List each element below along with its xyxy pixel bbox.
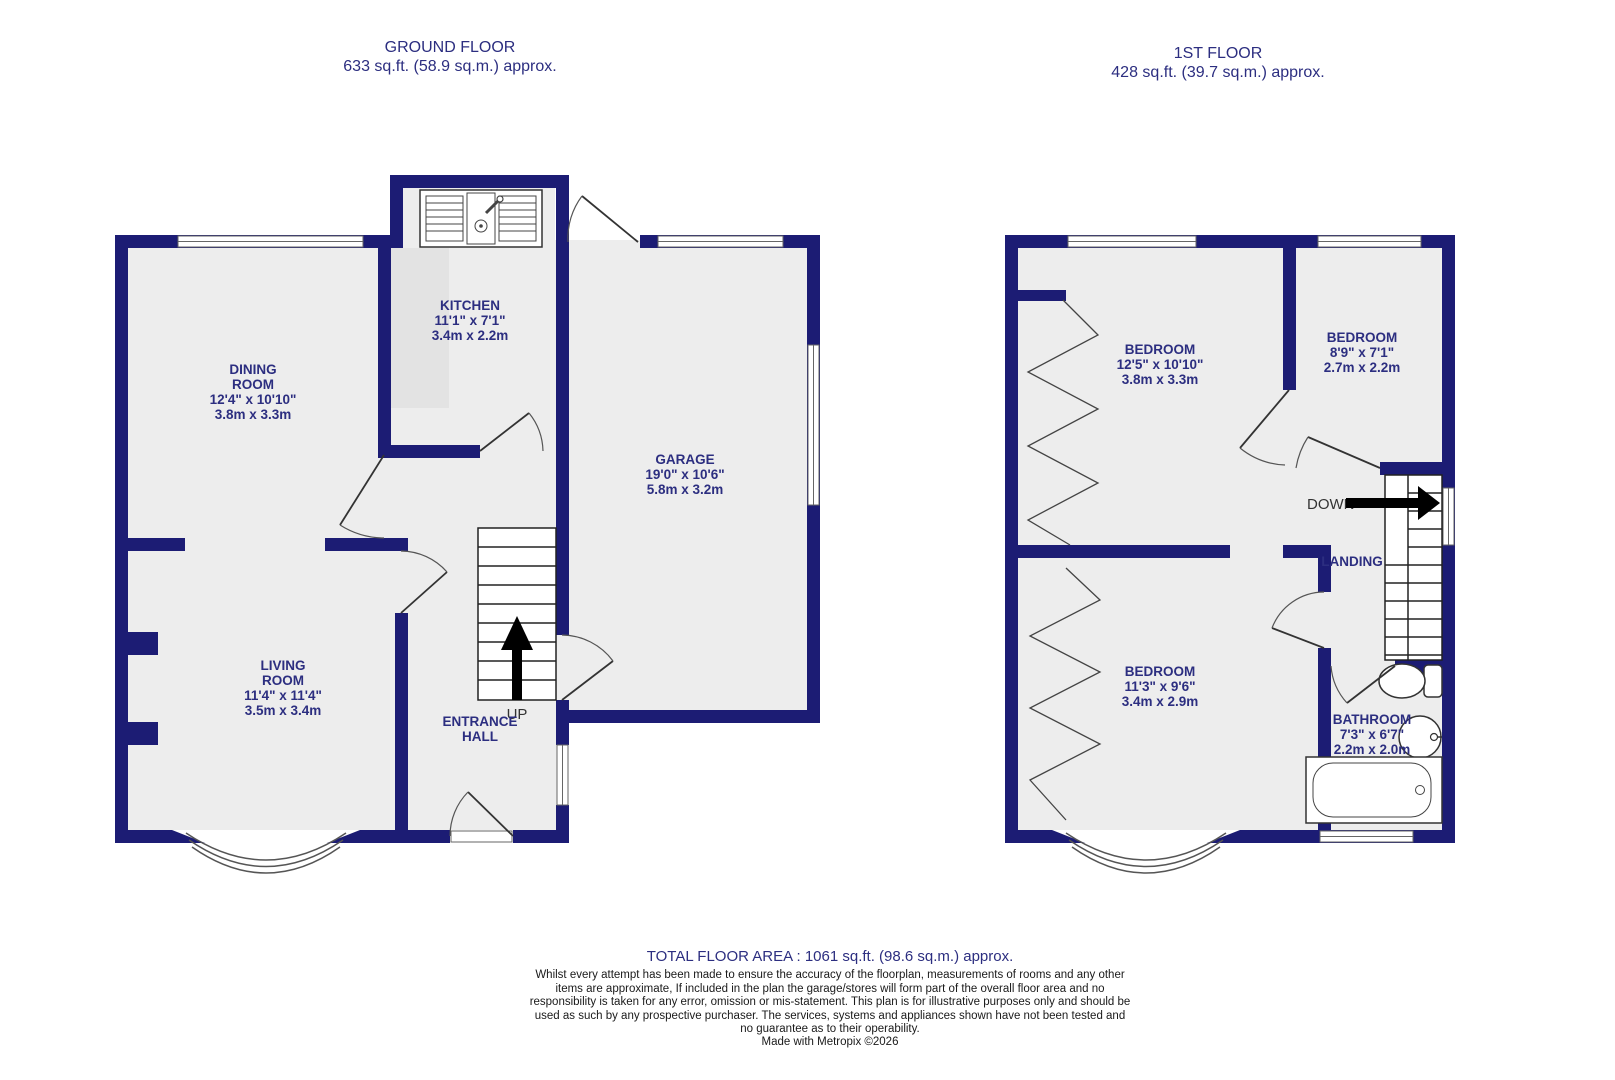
- room-name: KITCHEN: [360, 298, 580, 313]
- room-name: BEDROOM: [1252, 330, 1472, 345]
- ground-floor-title: GROUND FLOOR 633 sq.ft. (58.9 sq.m.) app…: [230, 38, 670, 76]
- hall-side-window: [557, 745, 568, 805]
- room-name: GARAGE: [575, 452, 795, 467]
- room-label-bedroom1: BEDROOM 12'5" x 10'10" 3.8m x 3.3m: [1050, 342, 1270, 387]
- room-label-landing: LANDING: [1282, 554, 1422, 569]
- room-label-bathroom: BATHROOM 7'3" x 6'7" 2.2m x 2.0m: [1262, 712, 1482, 757]
- garage-top-window: [658, 236, 783, 247]
- room-name: BEDROOM: [1050, 342, 1270, 357]
- room-dims-metric: 3.4m x 2.2m: [360, 328, 580, 343]
- room-label-bedroom2: BEDROOM 8'9" x 7'1" 2.7m x 2.2m: [1252, 330, 1472, 375]
- room-dims-metric: 5.8m x 3.2m: [575, 482, 795, 497]
- bathtub-icon: [1306, 757, 1442, 823]
- ground-floor-name: GROUND FLOOR: [230, 38, 670, 57]
- first-floor-area: 428 sq.ft. (39.7 sq.m.) approx.: [998, 63, 1438, 82]
- room-label-living: LIVING ROOM 11'4" x 11'4" 3.5m x 3.4m: [173, 658, 393, 718]
- bedroom1-window: [1068, 236, 1196, 247]
- first-floor-title: 1ST FLOOR 428 sq.ft. (39.7 sq.m.) approx…: [998, 44, 1438, 82]
- room-dims-imperial: 11'3" x 9'6": [1050, 679, 1270, 694]
- room-name: LIVING ROOM: [173, 658, 393, 688]
- ground-floor-plan: UP: [115, 175, 820, 873]
- room-name: DINING ROOM: [143, 362, 363, 392]
- room-dims-metric: 3.8m x 3.3m: [143, 407, 363, 422]
- floorplan-page: UP: [0, 0, 1615, 1080]
- room-name: LANDING: [1282, 554, 1422, 569]
- toilet-icon: [1379, 664, 1442, 698]
- room-dims-metric: 2.7m x 2.2m: [1252, 360, 1472, 375]
- room-dims-imperial: 11'1" x 7'1": [360, 313, 580, 328]
- total-floor-area: TOTAL FLOOR AREA : 1061 sq.ft. (98.6 sq.…: [455, 948, 1205, 965]
- room-dims-imperial: 19'0" x 10'6": [575, 467, 795, 482]
- room-dims-metric: 3.5m x 3.4m: [173, 703, 393, 718]
- first-floor-name: 1ST FLOOR: [998, 44, 1438, 63]
- room-dims-imperial: 8'9" x 7'1": [1252, 345, 1472, 360]
- room-label-dining: DINING ROOM 12'4" x 10'10" 3.8m x 3.3m: [143, 362, 363, 422]
- room-dims-imperial: 7'3" x 6'7": [1262, 727, 1482, 742]
- landing-window: [1443, 488, 1454, 545]
- credit-text: Made with Metropix ©2026: [528, 1036, 1132, 1048]
- room-dims-imperial: 12'4" x 10'10": [143, 392, 363, 407]
- bathroom-window: [1320, 831, 1413, 842]
- room-name: ENTRANCE HALL: [370, 714, 590, 744]
- stairs-ground: [478, 528, 556, 700]
- room-dims-metric: 3.4m x 2.9m: [1050, 694, 1270, 709]
- room-dims-metric: 3.8m x 3.3m: [1050, 372, 1270, 387]
- garage-side-window: [808, 345, 819, 505]
- room-name: BEDROOM: [1050, 664, 1270, 679]
- room-dims-imperial: 12'5" x 10'10": [1050, 357, 1270, 372]
- kitchen-sink-icon: [420, 190, 542, 247]
- bedroom2-window: [1318, 236, 1421, 247]
- room-dims-metric: 2.2m x 2.0m: [1262, 742, 1482, 757]
- front-door-threshold: [451, 831, 512, 842]
- room-label-entrance-hall: ENTRANCE HALL: [370, 714, 590, 744]
- room-label-kitchen: KITCHEN 11'1" x 7'1" 3.4m x 2.2m: [360, 298, 580, 343]
- room-label-garage: GARAGE 19'0" x 10'6" 5.8m x 3.2m: [575, 452, 795, 497]
- ground-floor-area: 633 sq.ft. (58.9 sq.m.) approx.: [230, 57, 670, 76]
- room-dims-imperial: 11'4" x 11'4": [173, 688, 393, 703]
- room-name: BATHROOM: [1262, 712, 1482, 727]
- floorplan-svg: UP: [0, 0, 1615, 1080]
- room-label-bedroom3: BEDROOM 11'3" x 9'6" 3.4m x 2.9m: [1050, 664, 1270, 709]
- bay-window-ground: [186, 833, 346, 873]
- bay-window-first: [1066, 833, 1226, 873]
- dining-window: [178, 236, 363, 247]
- disclaimer-text: Whilst every attempt has been made to en…: [528, 969, 1132, 1037]
- garage-side-door: [568, 196, 638, 242]
